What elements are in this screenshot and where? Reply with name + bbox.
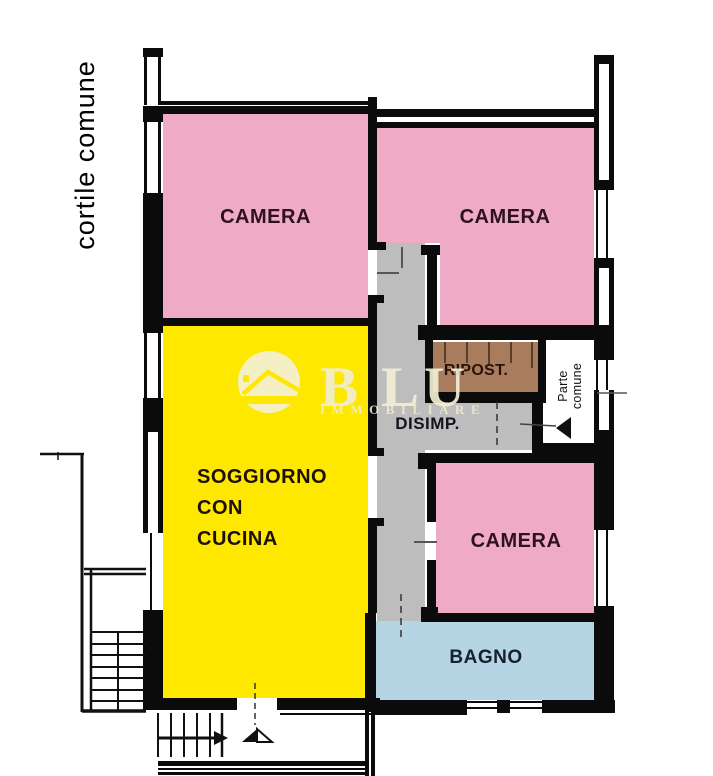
door-leaf-lines <box>377 247 437 542</box>
label-soggiorno-line3: CUCINA <box>197 524 367 555</box>
label-ripostiglio: RIPOST. <box>433 362 519 380</box>
label-soggiorno-line1: SOGGIORNO <box>197 462 367 493</box>
common-area-label-line1: Parte <box>556 340 570 432</box>
plan-line-details <box>0 0 713 776</box>
label-soggiorno-line2: CON <box>197 493 367 524</box>
label-disimpegno: DISIMP. <box>380 414 475 434</box>
label-camera-bottom: CAMERA <box>436 530 596 553</box>
stairs-direction-arrow <box>158 731 228 745</box>
label-soggiorno: SOGGIORNO CON CUCINA <box>197 462 367 555</box>
floor-plan: cortile comune CAMERA CAMERA CAMERA SOGG… <box>0 0 713 776</box>
stairwell-left <box>40 452 146 712</box>
dashed-door-lines <box>401 402 497 640</box>
common-area-label: Parte comune <box>556 340 584 432</box>
label-camera-top-right: CAMERA <box>420 206 590 229</box>
stairs-bottom <box>158 713 222 757</box>
label-bagno: BAGNO <box>375 647 597 669</box>
label-camera-top-left: CAMERA <box>163 206 368 229</box>
common-area-label-line2: comune <box>570 340 584 432</box>
entrance-door-symbol <box>242 683 272 742</box>
